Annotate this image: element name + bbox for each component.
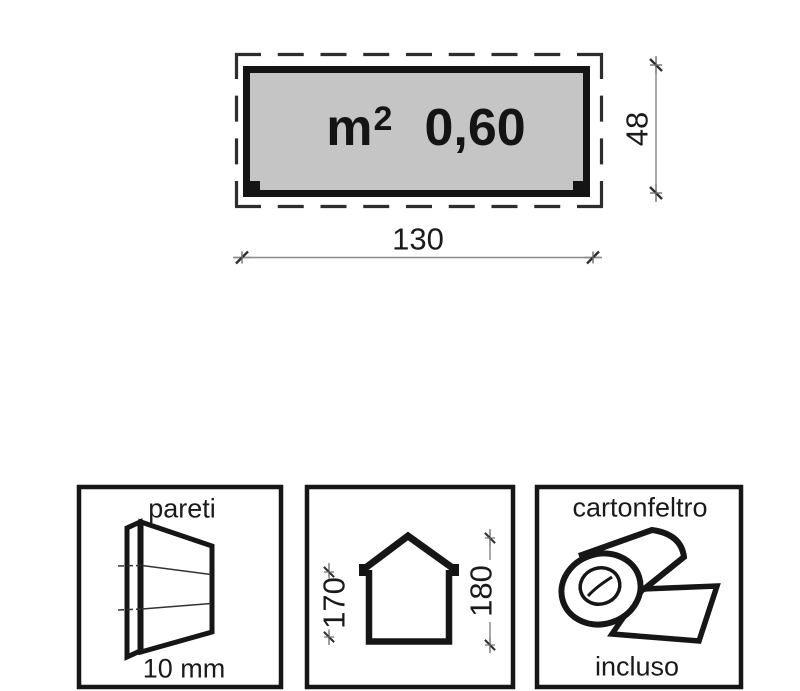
walls-thickness-value: 10 mm	[143, 656, 226, 683]
depth-dimension-label: 48	[622, 112, 653, 146]
felt-title: cartonfeltro	[572, 495, 707, 522]
area-unit-exponent: 2	[374, 102, 393, 136]
dimension-tick	[650, 56, 662, 74]
eaves-height-label: 170	[319, 577, 350, 629]
felt-included-value: incluso	[595, 654, 679, 681]
ridge-height-label: 180	[466, 565, 497, 617]
dimension-tick	[485, 637, 495, 652]
width-dimension-label: 130	[392, 224, 444, 255]
floor-area-label: m20,60	[326, 102, 525, 154]
dimension-tick	[233, 252, 251, 264]
area-value: 0,60	[424, 102, 525, 154]
product-spec-sheet: m20,60 130 48 pareti 10 mm 170 180 carto…	[0, 0, 800, 691]
dimension-tick	[485, 530, 495, 545]
plan-corner-notch-right	[573, 181, 583, 190]
dimension-tick	[650, 184, 662, 202]
wall-panels-icon	[118, 522, 212, 657]
felt-roll-icon	[552, 530, 717, 641]
dimension-tick	[324, 629, 334, 644]
plan-corner-notch-left	[250, 181, 260, 190]
area-unit: m	[326, 102, 372, 154]
walls-title: pareti	[148, 496, 216, 523]
dimension-tick	[584, 252, 602, 264]
house-outline-icon	[359, 536, 459, 642]
